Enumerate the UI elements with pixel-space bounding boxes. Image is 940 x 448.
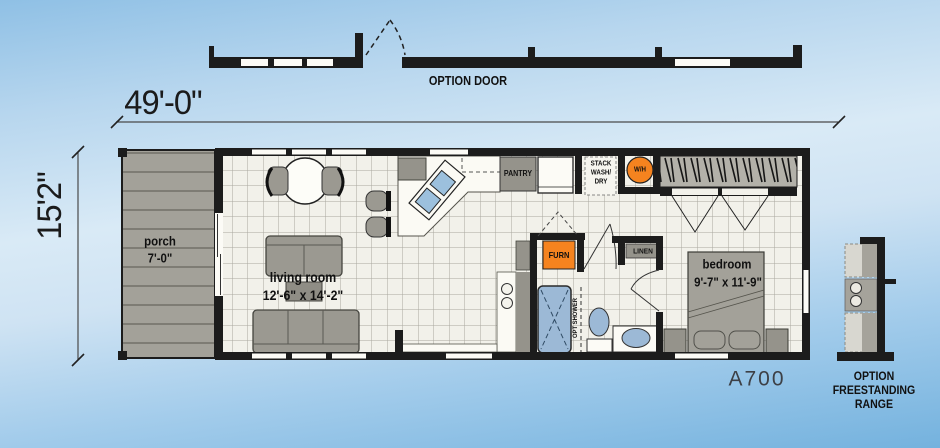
door-swing-dashed <box>366 20 390 55</box>
range-burner <box>502 298 513 309</box>
interior-wall <box>656 236 663 270</box>
interior-wall <box>618 243 625 265</box>
elevation-window-edge <box>675 57 730 59</box>
window <box>804 270 809 313</box>
dining-chair <box>322 167 343 196</box>
bathtub <box>538 286 571 353</box>
bedroom-size-label: 9'-7" x 11'-9" <box>694 276 762 289</box>
interior-wall <box>612 236 663 243</box>
window <box>252 150 468 155</box>
porch-size-label: 7'-0" <box>148 252 173 265</box>
inset-wall <box>877 237 885 358</box>
nook-counter <box>402 344 497 352</box>
interior-wall <box>653 156 660 194</box>
overall-height-dimension-label: 15'2" <box>33 172 67 239</box>
bar-stool <box>366 217 391 237</box>
dining-chair <box>267 167 288 196</box>
cabinet <box>516 241 530 270</box>
sliding-glass-door <box>215 213 223 296</box>
elevation-tick <box>528 47 535 57</box>
opt-shower-label: OPT SHOWER <box>573 298 580 338</box>
living-room-size-label: 12'-6" x 14'-2" <box>263 288 344 302</box>
dining-table <box>282 158 328 204</box>
option-range-note-label: OPTION <box>854 370 894 382</box>
inset-cabinet-gray <box>862 313 877 352</box>
range-burner <box>851 296 862 307</box>
porch-post <box>118 148 127 157</box>
range-burner <box>502 284 513 295</box>
interior-wall <box>530 233 585 240</box>
range-burner <box>851 283 862 294</box>
linen-label: LINEN <box>633 247 653 255</box>
floor-plan-page: OPTION DOOR 49'-0" 15'2" porch 7'-0" liv… <box>0 0 940 448</box>
water-heater-label: W/H <box>634 167 646 174</box>
stack-wash-dry-label: WASH/ <box>591 170 611 177</box>
elevation-wall <box>402 57 675 68</box>
nightstand <box>664 329 686 353</box>
porch-label: porch <box>144 235 176 248</box>
elevation-end-cap <box>793 45 802 68</box>
stack-wash-dry-label: DRY <box>595 179 608 186</box>
overall-width-dimension-label: 49'-0" <box>124 86 201 120</box>
elevation-window-edge <box>675 66 730 68</box>
vanity-sink <box>613 326 659 352</box>
door-swing-dashed <box>390 20 405 55</box>
inset-cabinet-gray <box>862 244 877 277</box>
sofa <box>253 310 359 353</box>
porch-post <box>118 351 127 360</box>
kitchen-cabinet <box>398 158 426 180</box>
interior-wall <box>530 272 537 360</box>
pillow <box>694 331 725 349</box>
option-door-label: OPTION DOOR <box>429 75 507 88</box>
height-dimension <box>72 146 84 366</box>
model-number-label: A700 <box>728 369 785 390</box>
interior-wall-stub <box>395 330 403 352</box>
interior-wall <box>575 156 582 194</box>
option-range-note-label: RANGE <box>855 398 893 410</box>
elevation-window <box>274 59 302 66</box>
elevation-window <box>675 59 730 66</box>
width-dimension <box>111 116 845 128</box>
elevation-wall <box>730 57 793 68</box>
bar-stool <box>366 191 391 211</box>
stack-wash-dry-label: STACK <box>591 161 612 168</box>
furnace-label: FURN <box>549 251 570 260</box>
door-jamb-stub <box>355 33 363 68</box>
option-range-inset <box>837 237 896 361</box>
interior-wall <box>530 233 537 272</box>
inset-wall-tick <box>885 279 896 284</box>
floor-plan-drawing <box>0 0 940 448</box>
pantry-label: PANTRY <box>504 170 532 178</box>
bedroom-label: bedroom <box>703 258 752 271</box>
inset-range <box>845 279 877 311</box>
cabinet-strip <box>516 272 530 352</box>
elevation-tick <box>655 47 662 57</box>
refrigerator <box>538 157 573 193</box>
interior-wall <box>577 233 584 272</box>
option-door-elevation <box>209 20 802 68</box>
elevation-window <box>307 59 333 66</box>
pillow <box>729 331 760 349</box>
living-room-label: living room <box>270 270 336 284</box>
elevation-window <box>241 59 268 66</box>
nightstand <box>766 329 788 353</box>
inset-wall <box>837 352 894 361</box>
option-range-note-label: FREESTANDING <box>833 384 916 396</box>
